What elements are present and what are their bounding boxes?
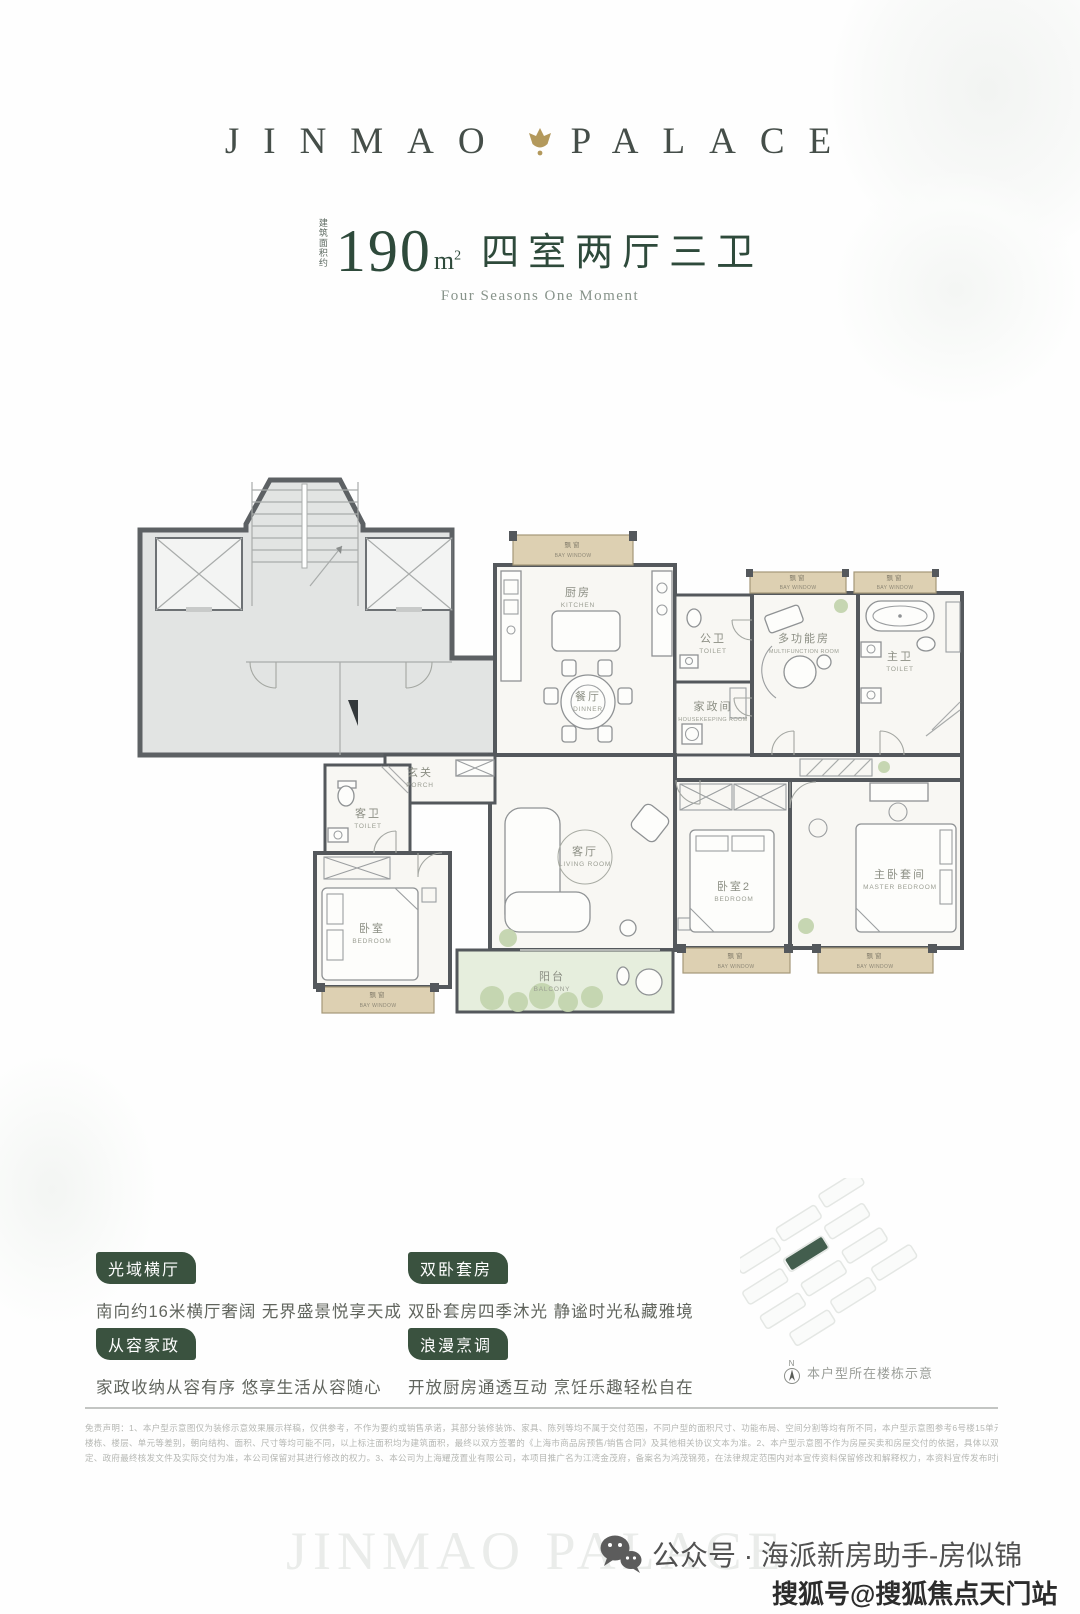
area-value: 190 — [336, 224, 432, 278]
subtitle-en: Four Seasons One Moment — [0, 288, 1080, 305]
porch-label-en: PORCH — [406, 782, 433, 789]
feature-desc: 双卧套房四季沐光 静谧时光私藏雅境 — [408, 1298, 708, 1322]
guest-toilet-label-cn: 客卫 — [355, 806, 381, 820]
brand-logo: JINMAO PALACE — [0, 120, 1080, 163]
dinner-label-cn: 餐厅 — [575, 689, 601, 703]
guest-toilet-label-en: TOILET — [354, 823, 381, 830]
kitchen-label-en: KITCHEN — [561, 602, 595, 609]
floorplan: 厨房 KITCHEN 餐厅 DINNER 公卫 TOILET 家政间 HOUSE… — [100, 430, 980, 1030]
porch-label-cn: 玄关 — [407, 765, 433, 779]
footer-divider — [85, 1407, 998, 1409]
disclaimer-text: 免责声明：1、本户型示意图仅为装修示意效果展示样稿，仅供参考，不作为要约或销售承… — [85, 1421, 998, 1466]
wechat-account-row: 公众号 · 海派新房助手-房似锦 — [598, 1532, 1022, 1576]
brand-name-left: JINMAO — [225, 120, 509, 163]
baywindow-label-cn: 飘窗 — [565, 540, 582, 549]
feature-light-hall: 光域横厅 南向约16米横厅奢阔 无界盛景悦享天成 — [96, 1252, 396, 1322]
master-bedroom-label-cn: 主卧套间 — [874, 868, 926, 881]
wechat-icon — [598, 1532, 644, 1576]
brand-name-right: PALACE — [571, 120, 856, 163]
living-label-cn: 客厅 — [572, 844, 598, 858]
feature-tag: 双卧套房 — [408, 1252, 508, 1284]
svg-text:N: N — [789, 1359, 796, 1368]
gold-crest-icon — [527, 127, 553, 157]
bedroom-label-en: BEDROOM — [352, 938, 391, 945]
multifunction-label-cn: 多功能房 — [778, 631, 830, 645]
sohu-account-label: 搜狐号@搜狐焦点天门站 — [772, 1574, 1057, 1611]
locator-caption: N 本户型所在楼栋示意 — [738, 1358, 978, 1386]
elevator-left — [156, 538, 242, 612]
housekeeping-label-cn: 家政间 — [694, 699, 733, 713]
bedroom2-label-cn: 卧室2 — [717, 879, 751, 893]
compass-icon: N — [783, 1358, 801, 1386]
living-label-en: LIVING ROOM — [559, 861, 611, 868]
feature-desc: 南向约16米横厅奢阔 无界盛景悦享天成 — [96, 1298, 396, 1322]
area-prefix-label: 建筑面积约 — [317, 218, 330, 268]
bedroom2-label-en: BEDROOM — [714, 896, 753, 903]
building-locator-diagram — [740, 1178, 970, 1350]
feature-desc: 开放厨房通透互动 烹饪乐趣轻松自在 — [408, 1374, 708, 1398]
locator-caption-text: 本户型所在楼栋示意 — [807, 1363, 933, 1382]
feature-desc: 家政收纳从容有序 悠享生活从容随心 — [96, 1374, 396, 1398]
site-plan-svg — [740, 1178, 970, 1350]
balcony-label-cn: 阳台 — [539, 969, 565, 983]
balcony-label-en: BALCONY — [534, 986, 571, 993]
headline: 建筑面积约 190 m2 四室两厅三卫 — [0, 218, 1080, 278]
layout-title: 四室两厅三卫 — [481, 221, 763, 276]
floorplan-svg: 厨房 KITCHEN 餐厅 DINNER 公卫 TOILET 家政间 HOUSE… — [100, 430, 980, 1030]
housekeeping-label-en: HOUSEKEEPING ROOM — [678, 717, 747, 723]
bedroom-label-cn: 卧室 — [359, 921, 385, 935]
baywindow-label-en: BAY WINDOW — [360, 1003, 397, 1009]
master-bedroom-label-en: MASTER BEDROOM — [863, 884, 937, 891]
feature-cooking: 浪漫烹调 开放厨房通透互动 烹饪乐趣轻松自在 — [408, 1328, 708, 1398]
baywindow-label-en: BAY WINDOW — [877, 585, 914, 591]
area-unit: m2 — [434, 246, 461, 276]
public-toilet-label-en: TOILET — [699, 648, 726, 655]
master-toilet-label-cn: 主卫 — [887, 650, 913, 663]
baywindow-label-cn: 飘窗 — [887, 573, 904, 582]
dinner-label-en: DINNER — [573, 706, 603, 713]
baywindow-label-en: BAY WINDOW — [555, 553, 592, 559]
public-toilet-label-cn: 公卫 — [700, 633, 726, 645]
kitchen-label-cn: 厨房 — [565, 586, 591, 599]
feature-double-suite: 双卧套房 双卧套房四季沐光 静谧时光私藏雅境 — [408, 1252, 708, 1322]
feature-tag: 光域横厅 — [96, 1252, 196, 1284]
feature-tag: 从容家政 — [96, 1328, 196, 1360]
baywindow-label-cn: 飘窗 — [370, 990, 387, 999]
elevator-right — [366, 538, 452, 612]
poster-page: JINMAO PALACE 建筑面积约 190 m2 四室两厅三卫 Four S… — [0, 0, 1080, 1614]
baywindow-label-en: BAY WINDOW — [718, 964, 755, 970]
wechat-account-label: 公众号 · 海派新房助手-房似锦 — [652, 1534, 1022, 1574]
baywindow-label-en: BAY WINDOW — [857, 964, 894, 970]
baywindow-label-cn: 飘窗 — [790, 573, 807, 582]
porch-cabinet — [456, 760, 494, 776]
baywindow-label-en: BAY WINDOW — [780, 585, 817, 591]
baywindow-label-cn: 飘窗 — [867, 951, 884, 960]
feature-tag: 浪漫烹调 — [408, 1328, 508, 1360]
multifunction-label-en: MULTIFUNCTION ROOM — [769, 649, 839, 655]
baywindow-label-cn: 飘窗 — [728, 951, 745, 960]
corridor — [675, 757, 962, 778]
feature-housekeeping: 从容家政 家政收纳从容有序 悠享生活从容随心 — [96, 1328, 396, 1398]
master-toilet-label-en: TOILET — [886, 666, 913, 673]
